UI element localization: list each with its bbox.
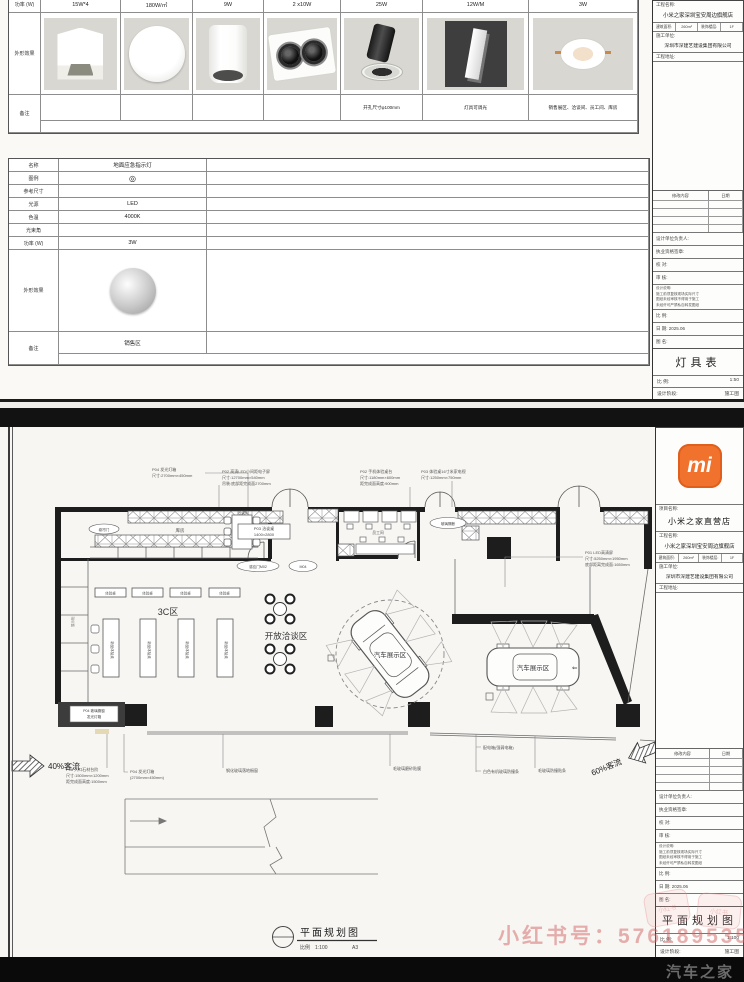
stage-value: 施工图 — [725, 390, 739, 397]
callout: P02 高清LED小间距电子屏 — [222, 468, 270, 474]
spec-empty — [207, 211, 649, 224]
plan-title: 平面规划图 — [300, 926, 360, 939]
emergency-light-photo — [59, 250, 207, 332]
spot-light-image — [355, 25, 407, 83]
xiaomi-logo-area: mi — [656, 428, 743, 504]
xiaomi-logo: mi — [678, 444, 722, 488]
drawing-title: 灯具表 — [653, 348, 743, 375]
fixture-schedule-table: 功率 (W) 15W*4 180W/㎡ 9W 2 x10W 25W 12W/M … — [8, 0, 639, 134]
revision-content-label: 修改内容 — [653, 191, 709, 200]
area-row: 建筑面积: 260m² 装饰楼层: 1F — [656, 553, 743, 562]
titleblock-sheet2: mi 项目名称: 小米之家直营店 工程名称: 小米之家深圳宝安周边旗舰店 建筑面… — [655, 427, 744, 958]
callout: 毛玻璃磨砂贴膜 — [393, 765, 421, 771]
remark-cell: 销售展区、洽谈间、员工间、库房 — [529, 95, 638, 121]
revision-row — [656, 782, 743, 790]
floor-plan-drawing: P03 洽谈桌 1400×2800 展示柜 体验桌 体验桌 — [0, 427, 655, 957]
callout: (2700mm×450mm) — [130, 775, 165, 780]
door-tag: 感应门M02 — [249, 564, 267, 569]
area-label: 建筑面积: — [656, 554, 679, 562]
empty-strip — [41, 121, 638, 133]
power-cell: 2 x10W — [264, 0, 341, 13]
storefront-box-line: P04 玻璃橱窗 — [83, 708, 105, 713]
left-wall-fixtures — [91, 625, 99, 673]
spec-value: 4000K — [59, 211, 207, 224]
callout: 白色有机玻璃防撞条 — [483, 768, 519, 774]
spec-value — [59, 185, 207, 198]
car-zone-1-label: 汽车展示区 — [374, 650, 407, 659]
builder-label: 施工单位: — [656, 562, 743, 571]
bottom-black-bar: 汽车之家 — [0, 957, 744, 982]
zone-lounge-label: 开放洽谈区 — [265, 631, 308, 641]
double-spot-image — [267, 25, 337, 81]
xiaohongshu-id-watermark: 小红书号：576189535 — [498, 920, 744, 950]
callout: 钢化玻璃落地橱窗 — [226, 767, 258, 773]
area-value: 260m² — [679, 554, 700, 562]
callout: 距完成面高度:900mm — [360, 480, 399, 486]
plan-scale-label: 比例 — [300, 944, 310, 951]
empty-strip — [59, 354, 649, 365]
empty-area — [656, 592, 743, 748]
revision-row — [653, 200, 743, 208]
remark-cell: 灯具可调光 — [423, 95, 529, 121]
spec-empty — [207, 172, 649, 185]
legend-symbol: ◎ — [59, 172, 207, 185]
remark-cell — [121, 95, 193, 121]
callout: 尺寸:5250mm×1950mm — [585, 555, 628, 561]
store-name: 小米之家直营店 — [656, 513, 743, 531]
remark-cell — [264, 95, 341, 121]
date-row: 日 期: 2025.06 — [653, 322, 743, 335]
plan-size: A3 — [352, 945, 358, 951]
door-tag: 玻璃隔断 — [441, 521, 456, 526]
builder-label: 施工单位: — [653, 31, 743, 40]
spec-value — [59, 224, 207, 237]
spec-label-appearance: 外形效果 — [9, 250, 59, 332]
callout: 尺寸:12700mm×540mm — [222, 474, 265, 480]
table-tag: 体验桌 — [219, 591, 230, 596]
drawing-title-block: 平面规划图 比例 1:100 A3 — [273, 926, 378, 951]
spec-value: LED — [59, 198, 207, 211]
stage-label: 设计阶段: — [657, 390, 678, 397]
power-cell: 15W*4 — [41, 0, 121, 13]
area-row: 建筑面积: 260m² 装饰楼层: 1F — [653, 22, 743, 31]
date-label: 日 期: — [659, 884, 671, 889]
revision-row — [656, 774, 743, 782]
car-zone-2-arrow: ⇐ — [572, 665, 578, 672]
designer-row: 设计单位负责人: — [653, 232, 743, 245]
photo-of-drawings: 功率 (W) 15W*4 180W/㎡ 9W 2 x10W 25W 12W/M … — [0, 0, 744, 982]
spec-label: 参考尺寸 — [9, 185, 59, 198]
callout: 配电箱(强弱电箱) — [483, 744, 514, 750]
room-meeting-label: 洽谈间 — [237, 510, 249, 515]
threec-table-tags: 体验桌 体验桌 体验桌 体验桌 新品体验桌 新品体验桌 新品体验桌 新品体验桌 — [105, 591, 230, 660]
note-line: 未经许可严禁私自转发图纸 — [659, 861, 740, 866]
fixture-photo-round-panel — [121, 13, 193, 95]
floor-marker — [328, 655, 334, 661]
floor-value: 1F — [721, 23, 743, 31]
car-zone-2-label: 汽车展示区 — [517, 663, 550, 672]
power-cell: 25W — [341, 0, 423, 13]
callout: 尺寸:1250mm×750mm — [421, 474, 462, 480]
table-inner-label: 新品体验桌 — [224, 641, 229, 659]
sheet-lighting-schedule: 功率 (W) 15W*4 180W/㎡ 9W 2 x10W 25W 12W/M … — [0, 0, 744, 399]
flow-right-label: 60%客流 — [590, 756, 623, 777]
callout: P01 LED高清屏 — [585, 549, 613, 555]
license-row: 执业资格签章: — [656, 803, 743, 816]
spec-empty — [207, 185, 649, 198]
table-tag: 体验桌 — [142, 591, 153, 596]
table-tag: 体验桌 — [180, 591, 191, 596]
review-row: 审 核: — [656, 829, 743, 842]
spec-value: 3W — [59, 237, 207, 250]
spec-label-remark: 备注 — [9, 332, 59, 365]
builder-name: 深圳市深建艺建设集团有限公司 — [656, 571, 743, 583]
callout: 底部距离完成面:1650mm — [585, 561, 630, 567]
callout: 距完成面高度:1500mm — [66, 778, 107, 784]
left-strip-label: 展示柜 — [70, 616, 75, 627]
door-tag: M04 — [300, 565, 307, 569]
revision-date-label: 日期 — [709, 191, 743, 200]
linear-light-image — [445, 21, 507, 87]
project-name: 小米之家深圳宝安周边旗舰店 — [653, 9, 743, 22]
emergency-light-image — [110, 268, 156, 314]
spec-empty — [207, 250, 649, 332]
street-sketch — [125, 799, 378, 874]
zone-3c-label: 3C区 — [158, 607, 179, 617]
table-inner-label: 新品体验桌 — [185, 641, 190, 659]
callout: 吊装:底部距完成面2700mm — [222, 480, 271, 486]
design-notes: 设计说明: 施工前须复核现场实际尺寸 图纸未经审核不得用于施工 未经许可严禁私自… — [656, 842, 743, 867]
spec-label: 光源 — [9, 198, 59, 211]
callout: P03 体验桌16寸米家电视 — [421, 468, 466, 474]
threec-tables — [95, 588, 240, 677]
address-label: 工程地址: — [656, 583, 743, 592]
row-label-power: 功率 (W) — [9, 0, 41, 13]
spec-label: 色温 — [9, 211, 59, 224]
fixture-photo-mini-downlight — [529, 13, 638, 95]
door-tag: 卷帘门 — [99, 527, 110, 532]
callout: P04 发光灯箱 — [152, 466, 176, 472]
scale-label: 比 例: — [657, 378, 669, 385]
remark-cell — [193, 95, 264, 121]
emergency-light-spec-table: 名称 地面应急指示灯 图例 ◎ 参考尺寸 光源 LED 色温 4000K 光束角… — [8, 158, 650, 366]
proofread-row: 校 对: — [653, 258, 743, 271]
spec-label: 功率 (W) — [9, 237, 59, 250]
meeting-tag-1: P03 洽谈桌 — [254, 525, 274, 531]
sheet-border — [12, 427, 13, 957]
note-line: 未经许可严禁私自转发图纸 — [656, 303, 740, 308]
revision-header: 修改内容 日期 — [656, 748, 743, 758]
fixture-photo-surface-cylinder — [193, 13, 264, 95]
power-cell: 3W — [529, 0, 638, 13]
grille-light-image — [57, 28, 103, 80]
callout: P02 手机体验桌台 — [360, 468, 392, 474]
scale-row: 比 例: — [656, 867, 743, 880]
fixture-photo-recessed-spot — [341, 13, 423, 95]
scale-row: 比 例: — [653, 309, 743, 322]
builder-name: 深圳市深建艺建设集团有限公司 — [653, 40, 743, 52]
sheet-divider-band — [0, 408, 744, 427]
power-cell: 12W/M — [423, 0, 529, 13]
designer-row: 设计单位负责人: — [656, 790, 743, 803]
spec-value: 地面应急指示灯 — [59, 159, 207, 172]
project-label: 工程名称: — [653, 1, 743, 9]
downlight-image — [561, 39, 605, 69]
proofread-row: 校 对: — [656, 816, 743, 829]
revision-date-label: 日期 — [710, 749, 743, 758]
address-label: 工程地址: — [653, 52, 743, 61]
scale-pair: 比 例: 1:50 — [653, 375, 743, 387]
revision-row — [653, 208, 743, 216]
titleblock-sheet1: 工程名称: 小米之家深圳宝安周边旗舰店 建筑面积: 260m² 装饰楼层: 1F… — [652, 0, 744, 400]
spec-label: 名称 — [9, 159, 59, 172]
fixture-photo-magnetic-grille — [41, 13, 121, 95]
revision-row — [656, 766, 743, 774]
floor-label: 装饰楼层: — [698, 23, 721, 31]
revision-row — [653, 216, 743, 224]
spec-empty — [207, 224, 649, 237]
row-label-appearance: 外形效果 — [9, 13, 41, 95]
flow-right: 60%客流 — [587, 736, 655, 783]
sheet-divider-line — [0, 399, 744, 402]
revision-row — [653, 224, 743, 232]
flow-left-label: 40%客流 — [48, 761, 80, 771]
spec-label: 图例 — [9, 172, 59, 185]
floor-marker — [486, 693, 493, 700]
table-inner-label: 新品体验桌 — [110, 641, 115, 659]
scale-value: 1:50 — [730, 378, 739, 385]
spec-empty — [207, 332, 649, 354]
revision-row — [656, 758, 743, 766]
storefront-box-line: 发光灯箱 — [87, 714, 102, 719]
autohome-watermark: 汽车之家 — [666, 961, 734, 982]
name-row: 图 名: — [653, 335, 743, 348]
fixture-photo-double-spot — [264, 13, 341, 95]
spec-empty — [207, 198, 649, 211]
project-label: 工程名称: — [656, 531, 743, 540]
spec-empty — [207, 159, 649, 172]
callout: 尺寸:1500mm×1200mm — [66, 772, 109, 778]
table-tag: 体验桌 — [105, 591, 116, 596]
revision-content-label: 修改内容 — [656, 749, 710, 758]
area-value: 260m² — [676, 23, 698, 31]
table-inner-label: 新品体验桌 — [147, 641, 152, 659]
power-cell: 180W/㎡ — [121, 0, 193, 13]
design-notes: 设计说明: 施工前须复核现场实际尺寸 图纸未经审核不得用于施工 未经许可严禁私自… — [653, 284, 743, 309]
callout: P04 发光灯箱 — [130, 768, 154, 774]
plan-scale-value: 1:100 — [315, 945, 328, 951]
highlight-mark — [95, 729, 109, 734]
store-label: 项目名称: — [656, 504, 743, 513]
spec-empty — [207, 237, 649, 250]
spec-remark-value: 销售区 — [59, 332, 207, 354]
meeting-tag-2: 1400×2800 — [254, 532, 275, 537]
fixture-photo-linear-profile — [423, 13, 529, 95]
room-staff-label: 员工间 — [372, 530, 384, 535]
revision-header: 修改内容 日期 — [653, 190, 743, 200]
sheet-border — [8, 427, 10, 957]
floor-value: 1F — [722, 554, 743, 562]
remark-cell — [41, 95, 121, 121]
stage-pair: 设计阶段: 施工图 — [653, 387, 743, 399]
sheet-floor-plan: P03 洽谈桌 1400×2800 展示柜 体验桌 体验桌 — [0, 427, 744, 957]
date-value: 2025.06 — [669, 326, 685, 331]
spec-label: 光束角 — [9, 224, 59, 237]
date-label: 日 期: — [656, 326, 668, 331]
callout: 尺寸:2700mm×450mm — [152, 472, 193, 478]
license-row: 执业资格签章: — [653, 245, 743, 258]
panel-light-image — [129, 26, 185, 82]
row-label-remark: 备注 — [9, 95, 41, 133]
callout: 毛玻璃防撞贴条 — [538, 767, 566, 773]
project-name: 小米之家深圳宝安周边旗舰店 — [656, 540, 743, 553]
area-label: 建筑面积: — [653, 23, 676, 31]
callout: 尺寸:1180mm×600mm — [360, 474, 401, 480]
cylinder-light-image — [209, 25, 247, 83]
review-row: 审 核: — [653, 271, 743, 284]
power-cell: 9W — [193, 0, 264, 13]
empty-area — [653, 61, 743, 190]
floor-label: 装饰楼层: — [699, 554, 722, 562]
room-storage-label: 库房 — [176, 527, 185, 534]
remark-cell: 开孔尺寸φ100mm — [341, 95, 423, 121]
